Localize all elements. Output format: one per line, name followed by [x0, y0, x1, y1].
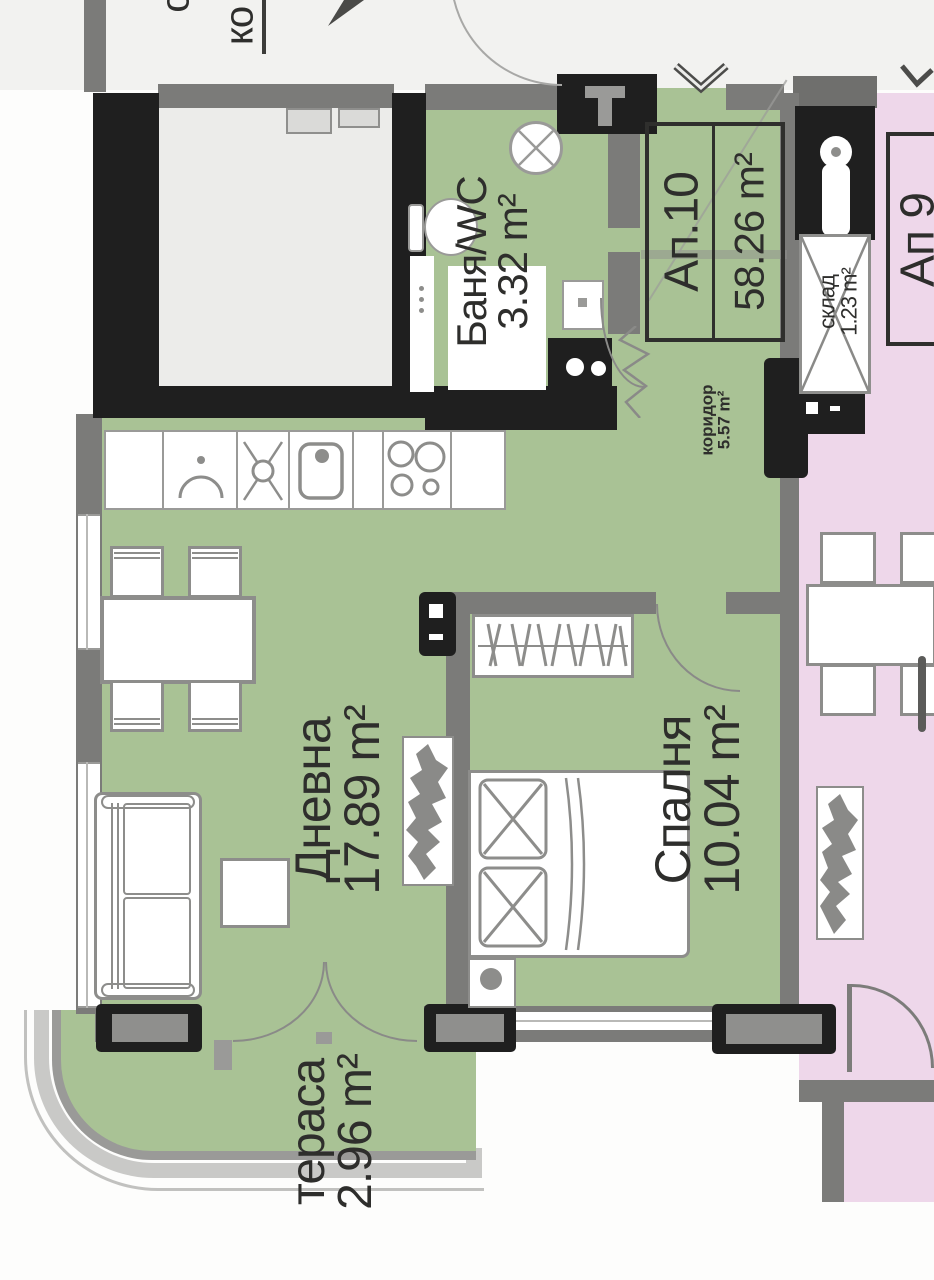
terrace-door-meeting-stile — [316, 1032, 332, 1044]
column-3-core — [726, 1014, 822, 1044]
panel-square — [806, 402, 818, 414]
wall-elevator-left — [93, 93, 159, 418]
door-niche — [338, 108, 380, 128]
entry-arrow-icon — [672, 60, 730, 98]
terrace-label: тераса 2.96 m² — [285, 1054, 379, 1210]
column-1-core — [112, 1014, 188, 1042]
coffee-table — [220, 858, 290, 928]
sofa — [94, 792, 202, 1000]
wall-bath-bottom — [425, 386, 617, 430]
window-left-upper-mullion — [86, 514, 88, 650]
wall-neighbor-top — [793, 76, 877, 108]
column-2-core — [436, 1014, 504, 1042]
intercom-dash — [429, 634, 443, 640]
neighbor-plant-icon — [818, 790, 862, 936]
neighbor-entry-arrow-icon — [900, 62, 934, 90]
wall-bath-right-upper — [608, 128, 640, 228]
counter-divider — [236, 432, 238, 508]
floor-plan: ко о Баня/WC 3.32 m² коридор 5.57 m² скл… — [0, 0, 934, 1280]
apartment-area: 58.26 m² — [728, 153, 769, 311]
neighbor-table — [806, 584, 934, 666]
wall-elevator-bottom — [93, 386, 425, 418]
storage-label: склад 1.23 m² — [816, 268, 859, 336]
bathroom-label: Баня/WC 3.32 m² — [451, 176, 533, 348]
chair-back — [192, 552, 238, 559]
corridor-label: коридор 5.57 m² — [699, 384, 732, 455]
entry-door-pivot — [598, 98, 612, 126]
neighbor-chair — [900, 664, 934, 716]
kitchen-sink-icon — [292, 434, 350, 508]
chair-back — [114, 718, 160, 725]
wall-bath-top — [425, 84, 559, 110]
dining-table — [100, 596, 256, 684]
bed-pillows-icon — [474, 776, 590, 952]
window-bedroom-south-mullion — [516, 1020, 714, 1022]
bath-cabinet-knob — [578, 298, 587, 307]
common-area-label-fragment: ко — [220, 7, 259, 45]
counter-divider — [450, 432, 452, 508]
window-left-upper — [78, 514, 100, 650]
counter-divider — [288, 432, 290, 508]
apartment-id: Ап.10 — [658, 172, 705, 292]
sink-basin-icon — [240, 434, 286, 508]
wall-neighbor-lower — [822, 1102, 844, 1202]
washing-machine-icon — [168, 434, 234, 508]
neighbor-chair — [900, 532, 934, 584]
fixture-dot — [413, 336, 429, 352]
sofa-backrest — [111, 803, 113, 989]
storage-panel-block — [793, 390, 865, 434]
neighbor-radiator — [918, 656, 926, 732]
counter-divider — [162, 432, 164, 508]
bedroom-label: Спалня 10.04 m² — [649, 705, 747, 894]
bedside-lamp — [480, 968, 502, 990]
window-left-lower-mullion — [86, 762, 88, 1008]
wall-neighbor-bottom — [799, 1080, 934, 1102]
fixture-dot — [566, 358, 584, 376]
apartment-label-box: Ап.10 58.26 m² — [645, 122, 785, 342]
neighbor-label-box: Ап 9 — [886, 132, 934, 346]
wall-elevator-top — [158, 84, 394, 108]
cooktop-icon — [384, 434, 448, 508]
wall-top-left — [84, 0, 106, 92]
plant-icon — [404, 740, 452, 882]
intercom-box — [419, 592, 456, 656]
fixture-dot — [591, 361, 606, 376]
socket-dot — [419, 286, 424, 291]
neighbor-chair — [820, 532, 876, 584]
toilet-tank — [408, 204, 424, 252]
intercom-square — [429, 604, 443, 618]
entry-door-frame — [585, 86, 625, 98]
sofa-cushion — [123, 897, 191, 989]
apartment-area-cell: 58.26 m² — [718, 126, 781, 338]
socket-dot — [419, 308, 424, 313]
chair-back — [114, 552, 160, 559]
neighbor-id: Ап 9 — [894, 193, 934, 287]
door-niche — [286, 108, 332, 134]
sofa-backrest — [117, 803, 119, 989]
sofa-cushion — [123, 803, 191, 895]
sofa-armrest — [101, 795, 195, 809]
stair-arrow-icon — [328, 0, 366, 26]
socket-dot — [419, 297, 424, 302]
neighbor-chair — [820, 664, 876, 716]
sofa-armrest — [101, 983, 195, 997]
terrace-door-leaf — [214, 1040, 232, 1070]
water-heater-body — [822, 164, 850, 236]
common-label-fraction-bar — [262, 0, 266, 54]
neighbor-door-leaf — [847, 984, 852, 1072]
water-heater-dot — [831, 147, 841, 157]
fixture-dot — [417, 370, 431, 384]
elevator-interior — [158, 106, 394, 390]
apartment-id-cell: Ап.10 — [649, 126, 715, 338]
living-room-label: Дневна 17.89 m² — [289, 705, 387, 894]
chair-back — [192, 718, 238, 725]
neighbor-terrace-floor — [844, 1102, 934, 1202]
panel-dash — [830, 406, 840, 411]
bath-sink-cross-icon — [509, 121, 563, 175]
common-area-label-fragment-partial: о — [156, 0, 195, 13]
wardrobe-hangers-icon — [476, 618, 630, 674]
counter-divider — [352, 432, 354, 508]
wall-bedroom-top — [464, 592, 656, 614]
